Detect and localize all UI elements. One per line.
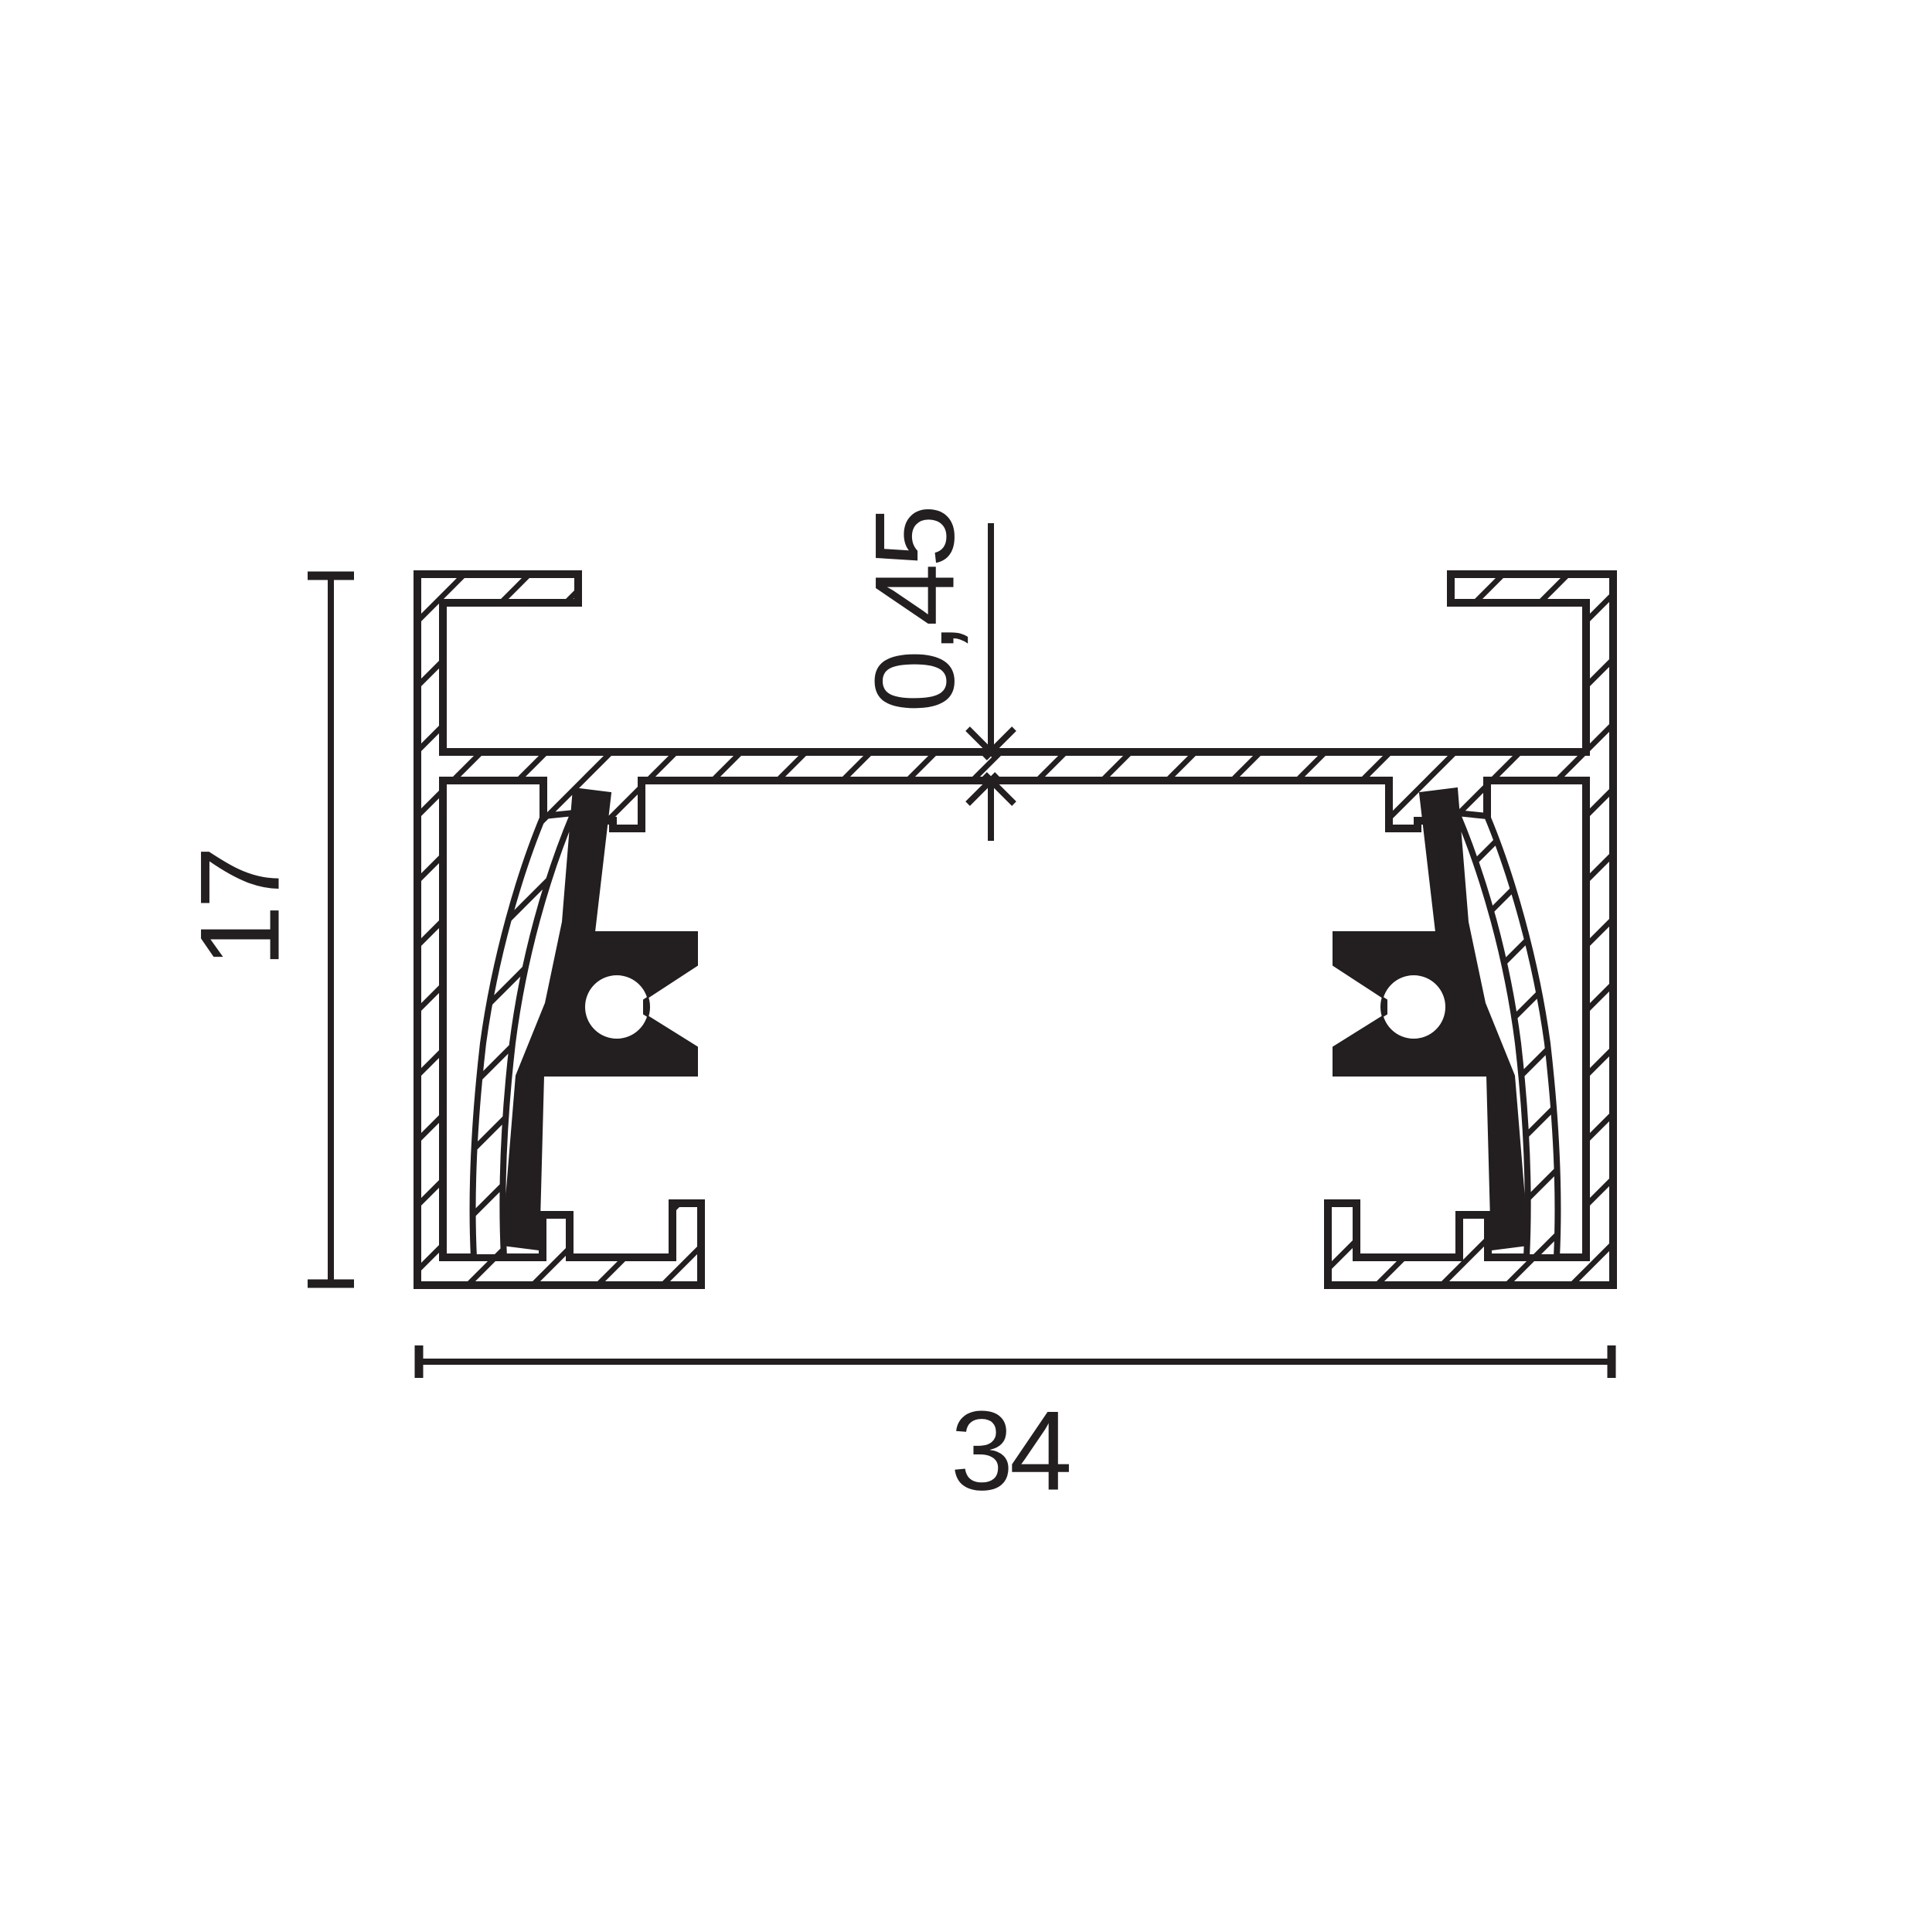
web-thickness-dimension: 0,45: [852, 509, 1015, 841]
width-dimension-label: 34: [951, 1388, 1069, 1514]
height-dimension-label: 17: [177, 850, 303, 968]
aluminum-profile-section: [417, 574, 1613, 1285]
web-thickness-dimension-label: 0,45: [852, 509, 978, 713]
technical-drawing-page: 17 34 0,45: [0, 0, 1930, 1932]
width-dimension: 34: [417, 1345, 1613, 1514]
height-dimension: 17: [177, 574, 355, 1285]
track-profile-cross-section-drawing: 17 34 0,45: [0, 0, 1930, 1932]
